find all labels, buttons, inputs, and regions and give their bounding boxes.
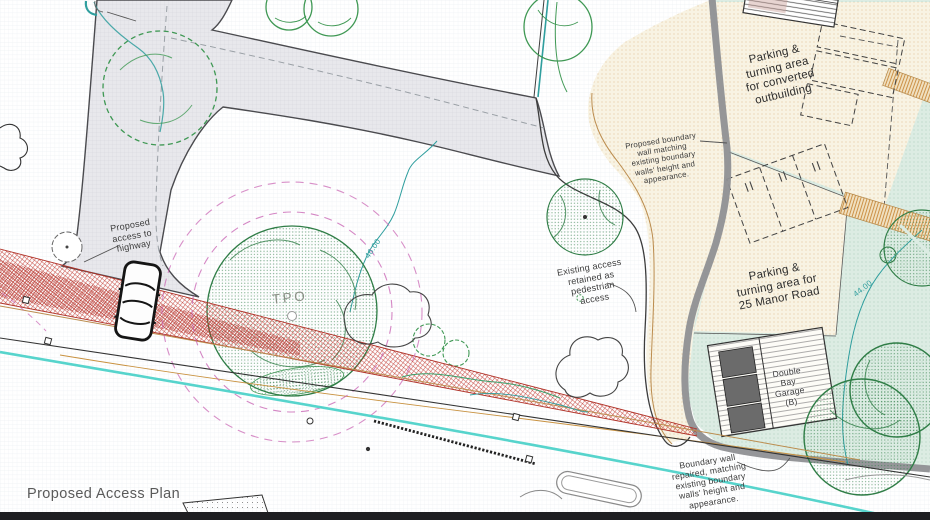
bush-right-small (880, 247, 896, 263)
sheet-edge-bar (0, 512, 930, 520)
plan-title: Proposed Access Plan (27, 486, 180, 502)
tpo-marker (288, 312, 297, 321)
site-plan-canvas: Proposed access to highway TPO Existing … (0, 0, 930, 520)
